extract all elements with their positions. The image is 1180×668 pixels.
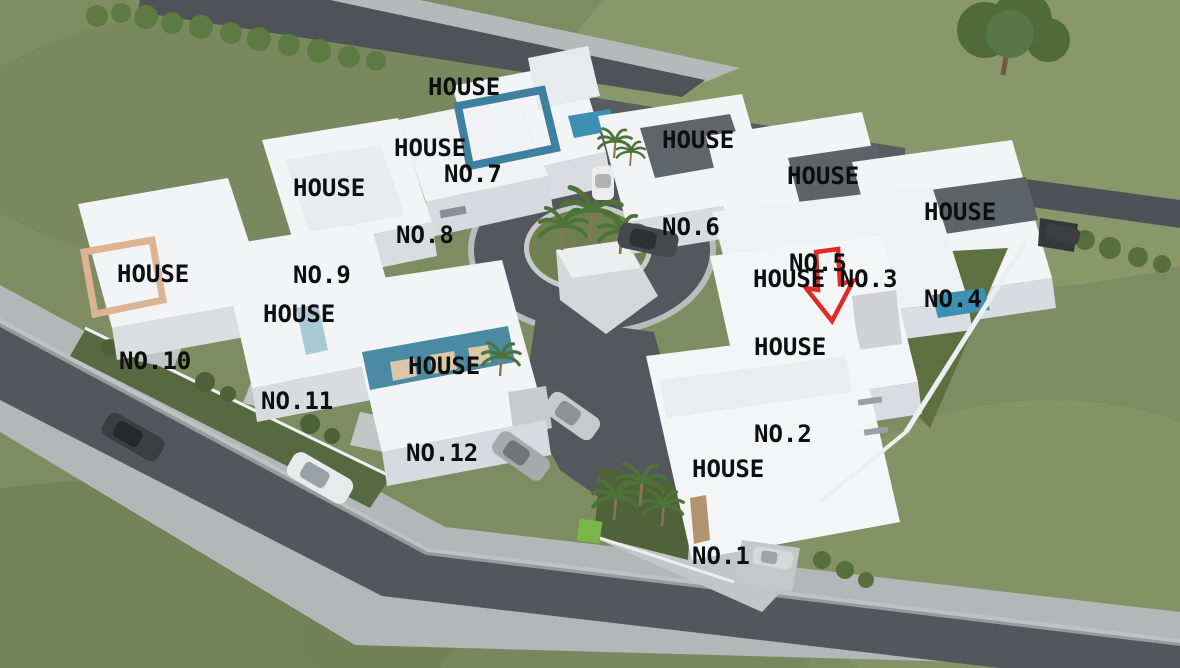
- house-label-4: HOUSE NO.4: [924, 140, 996, 372]
- house-label-5: HOUSE NO.5: [787, 104, 859, 336]
- house-label-6: HOUSE NO.6: [662, 68, 734, 300]
- green-bin: [577, 519, 603, 544]
- house-label-10: HOUSE NO.10: [117, 202, 191, 434]
- house-label-11: HOUSE NO.11: [263, 242, 335, 474]
- house-label-12: HOUSE NO.12: [408, 294, 480, 526]
- site-plan-render: HOUSE NO.1 HOUSE NO.2 HOUSE NO.3 HOUSE N…: [0, 0, 1180, 668]
- house-label-8: HOUSE NO.8: [394, 76, 466, 308]
- car-white-top: [592, 166, 614, 200]
